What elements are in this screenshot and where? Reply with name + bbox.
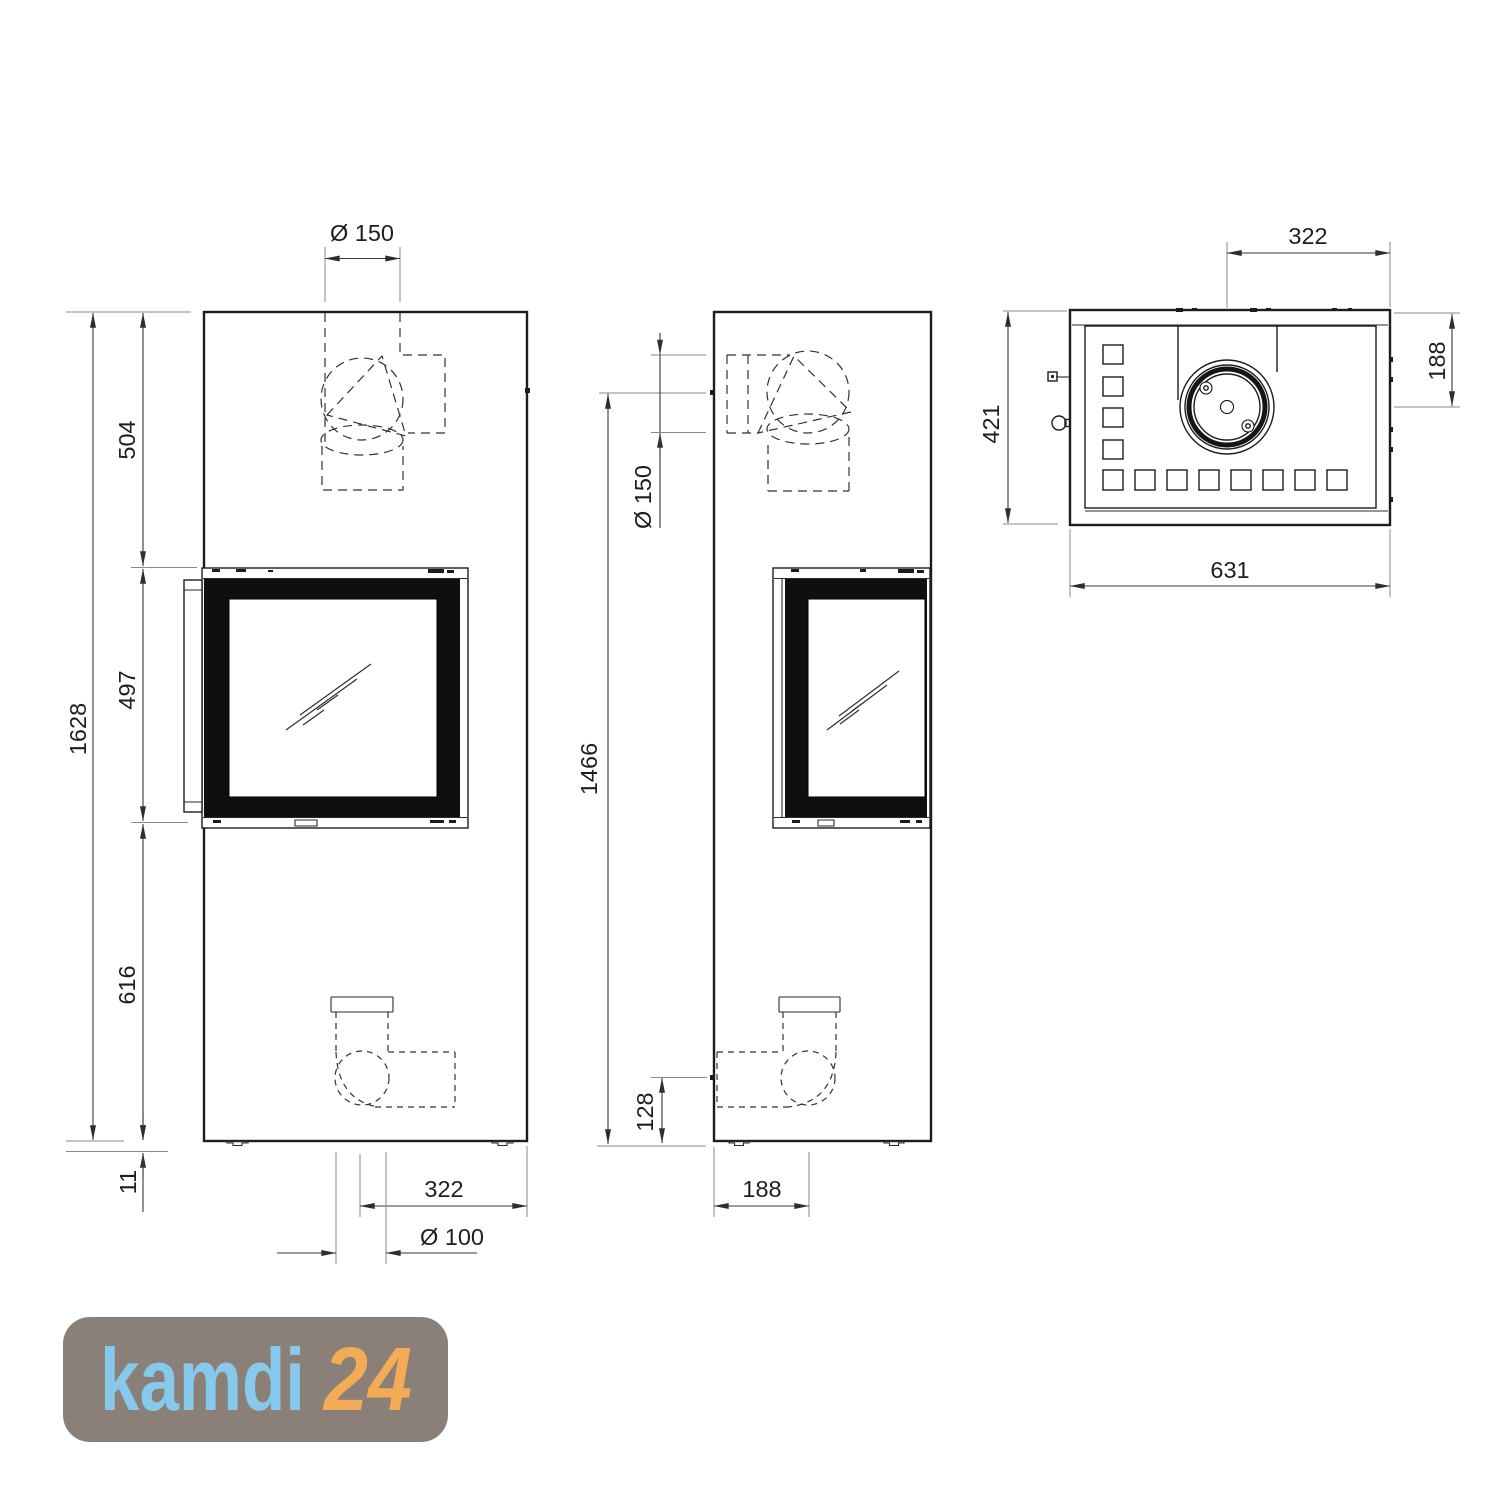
side-window-glass bbox=[808, 599, 925, 797]
top-collar-screw-tab-2 bbox=[1242, 420, 1254, 432]
dim-label-front-flue-diameter: Ø 150 bbox=[330, 220, 394, 246]
dim-label-side-flue-height: 1466 bbox=[576, 743, 602, 795]
dim-top-width: 631 bbox=[1070, 529, 1390, 597]
stove-dimension-drawing: Ø 150 1628 504 497 616 11 322 Ø 100 bbox=[0, 0, 1500, 1500]
dim-side-flue-diameter: Ø 150 bbox=[630, 333, 706, 529]
front-view bbox=[184, 312, 530, 1146]
top-body-outline bbox=[1070, 310, 1390, 525]
side-intake-center-tick bbox=[710, 1075, 715, 1080]
dim-front-lower-section: 616 bbox=[114, 824, 143, 1140]
top-left-edge-fittings bbox=[1048, 372, 1070, 430]
front-door-hinge-strip bbox=[184, 580, 202, 812]
front-door bbox=[184, 568, 468, 828]
dim-front-intake-diameter: Ø 100 bbox=[277, 1152, 484, 1264]
logo-brand-text: kamdi bbox=[100, 1330, 305, 1429]
top-collar-screw-tab-1 bbox=[1200, 382, 1212, 394]
top-view bbox=[1048, 308, 1393, 525]
logo-kamdi24: kamdi 24 bbox=[63, 1317, 448, 1442]
dim-front-intake-offset: 322 bbox=[360, 1146, 527, 1217]
dim-label-top-flue-depth: 188 bbox=[1424, 341, 1450, 380]
top-collar-center-hole bbox=[1221, 401, 1234, 414]
side-window bbox=[773, 568, 930, 828]
dim-top-flue-depth: 188 bbox=[1394, 313, 1460, 407]
dim-label-front-door-height: 497 bbox=[114, 670, 140, 709]
dim-label-top-depth: 421 bbox=[978, 404, 1004, 443]
dim-front-upper-section: 504 bbox=[114, 313, 197, 568]
dim-label-top-flue-offset: 322 bbox=[1288, 223, 1327, 249]
dim-label-top-width: 631 bbox=[1210, 557, 1249, 583]
dim-label-front-upper-section: 504 bbox=[114, 420, 140, 459]
dim-label-front-intake-offset: 322 bbox=[424, 1176, 463, 1202]
side-flue-center-tick bbox=[710, 390, 715, 395]
dim-label-front-base-clearance: 11 bbox=[115, 1170, 141, 1194]
dim-label-side-intake-height: 128 bbox=[632, 1092, 658, 1131]
dim-front-flue-diameter: Ø 150 bbox=[325, 220, 400, 302]
dim-side-base-depth: 188 bbox=[714, 1147, 809, 1217]
dim-side-intake-height: 128 bbox=[632, 1078, 707, 1144]
dim-label-front-total-height: 1628 bbox=[65, 703, 91, 755]
dim-top-flue-offset: 322 bbox=[1227, 223, 1390, 308]
dim-front-base-clearance: 11 bbox=[66, 1112, 168, 1212]
front-side-pin-tick bbox=[525, 388, 530, 393]
top-flue-collar bbox=[1180, 360, 1274, 454]
dim-label-side-flue-diameter: Ø 150 bbox=[630, 465, 656, 529]
technical-drawing-page: Ø 150 1628 504 497 616 11 322 Ø 100 bbox=[0, 0, 1500, 1500]
dim-label-front-lower-section: 616 bbox=[114, 965, 140, 1004]
side-view bbox=[710, 312, 931, 1146]
top-knob-fitting bbox=[1052, 416, 1066, 430]
dim-label-side-base-depth: 188 bbox=[742, 1176, 781, 1202]
dim-label-front-intake-diameter: Ø 100 bbox=[420, 1224, 484, 1250]
logo-suffix-text: 24 bbox=[322, 1330, 412, 1430]
dim-front-door-height: 497 bbox=[114, 569, 188, 823]
